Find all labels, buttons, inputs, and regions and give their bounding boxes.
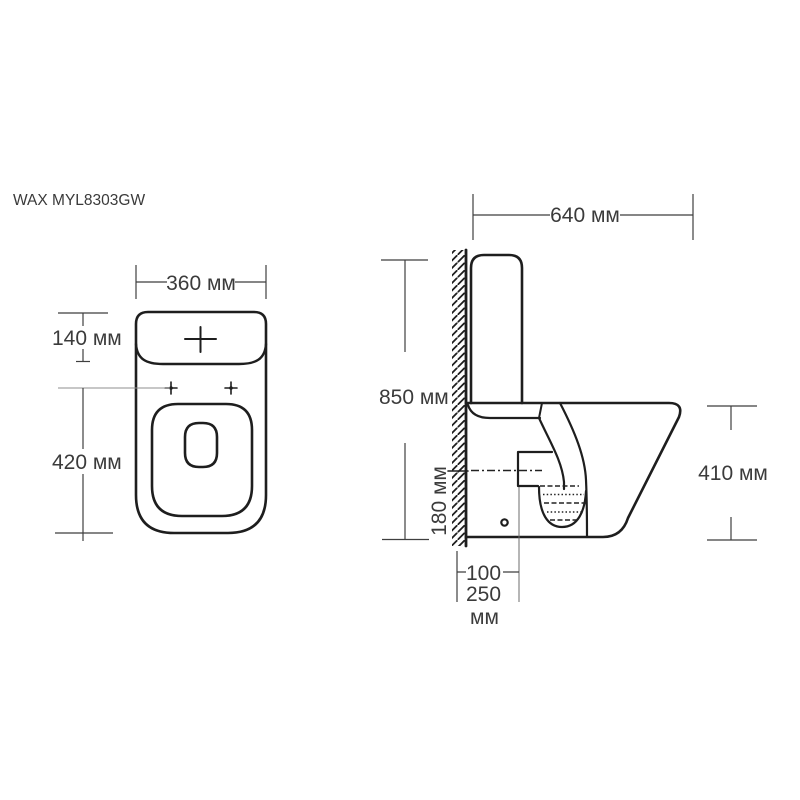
dimension-depth-640: 640 мм bbox=[473, 194, 693, 240]
bowl-opening-outline bbox=[185, 423, 217, 467]
bowl-rim-line bbox=[468, 405, 540, 418]
model-title: WAX MYL8303GW bbox=[13, 192, 145, 209]
seat-bolt-mark-right bbox=[225, 382, 237, 394]
dimension-bowl-height-label: 410 мм bbox=[698, 462, 768, 485]
dimension-rough-in: 100 250 мм bbox=[457, 551, 519, 629]
wall-hatching bbox=[452, 250, 466, 546]
dimension-length-420: 420 мм bbox=[52, 388, 122, 541]
seat-outline bbox=[152, 404, 252, 516]
dimension-depth-label: 640 мм bbox=[550, 204, 620, 227]
rough-in-value-1: 100 bbox=[466, 562, 501, 585]
top-view: 360 мм 140 мм 420 мм bbox=[52, 265, 266, 541]
trap-water-lines bbox=[540, 486, 586, 520]
side-view: 640 мм 850 мм 180 мм 410 мм 100 250 мм bbox=[379, 194, 768, 629]
trapway-outer-curve bbox=[560, 403, 587, 537]
lid-cross-mark bbox=[185, 327, 216, 352]
dimension-height-label: 850 мм bbox=[379, 386, 449, 409]
trapway-inner-curve bbox=[539, 418, 564, 489]
dimension-width-360: 360 мм bbox=[136, 265, 266, 299]
flush-passage-left-edge bbox=[539, 403, 542, 418]
outlet-box bbox=[518, 452, 552, 486]
rough-in-unit: мм bbox=[470, 606, 499, 629]
trap-u-bend bbox=[539, 487, 586, 527]
technical-drawing-sheet: WAX MYL8303GW 360 мм bbox=[0, 0, 800, 800]
dimension-length-label: 420 мм bbox=[52, 451, 122, 474]
dimension-width-label: 360 мм bbox=[166, 272, 236, 295]
dimension-tank-depth-140: 140 мм bbox=[52, 313, 122, 362]
cistern-outline bbox=[471, 255, 522, 403]
fixing-hole bbox=[501, 519, 507, 525]
dimension-bowl-height-410: 410 мм bbox=[698, 406, 768, 540]
toilet-dimension-diagram: WAX MYL8303GW 360 мм bbox=[0, 0, 800, 800]
rough-in-value-2: 250 bbox=[466, 583, 501, 606]
dimension-tank-depth-label: 140 мм bbox=[52, 327, 122, 350]
dimension-outlet-height-label: 180 мм bbox=[428, 466, 451, 536]
